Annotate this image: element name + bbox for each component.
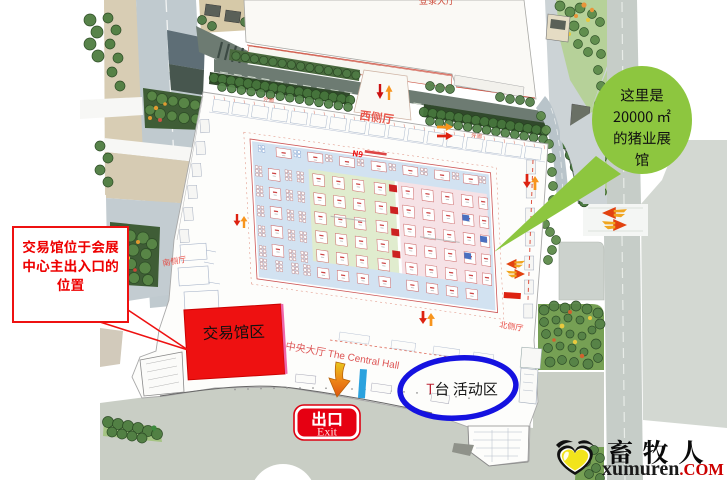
svg-text:xumuren.COM: xumuren.COM bbox=[602, 458, 724, 480]
svg-text:Exit: Exit bbox=[317, 425, 338, 439]
